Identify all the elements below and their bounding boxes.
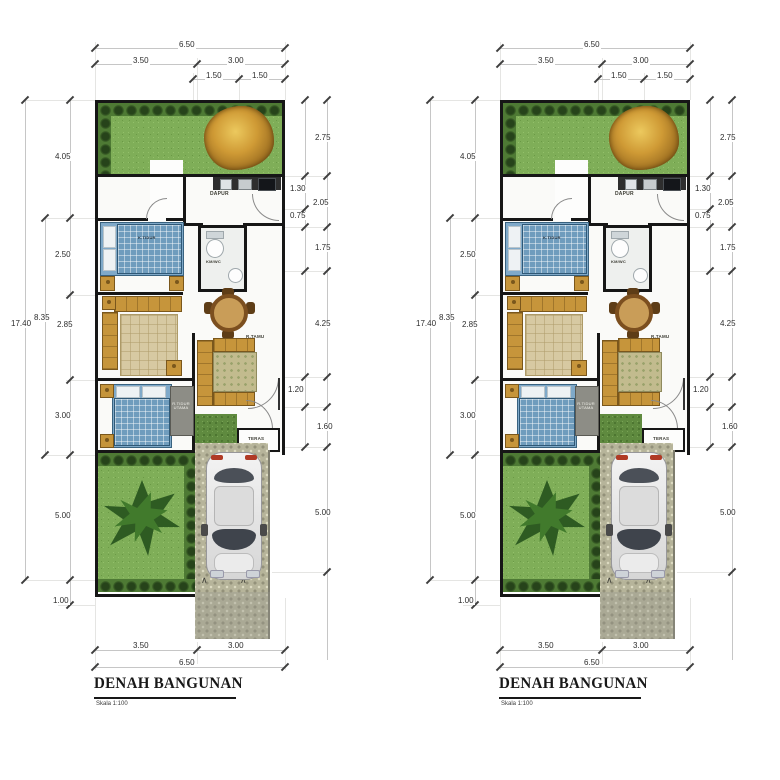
dim-left-4: 3.00 [54, 412, 72, 420]
dim-top-total: 6.50 [583, 41, 601, 49]
room-label-porch: TERAS [653, 437, 669, 442]
shrub-border [503, 579, 600, 592]
nightstand [100, 384, 114, 398]
sofa [197, 340, 213, 406]
sofa [213, 338, 255, 352]
extension-line [602, 642, 603, 664]
dimension-line [732, 100, 733, 660]
sofa [507, 312, 523, 370]
sink [633, 268, 648, 283]
plan-title: DENAH BANGUNAN [94, 676, 243, 694]
nightstand [169, 276, 184, 291]
car-mirror [665, 524, 672, 536]
floor-plan-left: 6.50 3.50 3.00 1.50 1.50 17.40 8.35 4.05… [0, 0, 390, 780]
dim-right-9: 5.00 [314, 509, 332, 517]
dim-right-1: 2.75 [719, 134, 737, 142]
dim-left-1: 4.05 [459, 153, 477, 161]
extension-line [95, 42, 96, 100]
dim-right-8: 1.60 [721, 423, 739, 431]
dim-right-7: 1.20 [287, 386, 305, 394]
ornamental-shrub [609, 106, 679, 170]
kitchen-sink [220, 179, 232, 190]
wall [243, 223, 282, 226]
extension-line [500, 598, 501, 670]
dimension-line [500, 650, 690, 651]
dimension-line [95, 650, 285, 651]
wall [503, 378, 599, 381]
room-label-bedroom: K.TIDUR [543, 236, 561, 240]
dim-bottom-right: 3.00 [632, 642, 650, 650]
lot-wall-east [282, 100, 285, 455]
car-mirror [260, 524, 267, 536]
dimension-line [45, 218, 46, 455]
dim-right-2: 1.30 [289, 185, 307, 193]
extension-line [430, 580, 500, 581]
plan-scale-note: Skala 1:100 [96, 701, 128, 707]
lot-wall-south [500, 594, 603, 597]
dim-left-1: 4.05 [54, 153, 72, 161]
sofa [618, 338, 660, 352]
kitchen-sink [625, 179, 637, 190]
car-rear-window [214, 468, 254, 483]
dimension-line [500, 64, 690, 65]
nightstand [100, 276, 115, 291]
car [611, 452, 667, 580]
title-underline [499, 697, 641, 699]
dim-left-mid: 8.35 [438, 314, 456, 322]
dim-bottom-total: 6.50 [178, 659, 196, 667]
dimension-line [710, 100, 711, 447]
dim-left-6: 1.00 [457, 597, 475, 605]
dim-left-2: 2.50 [54, 251, 72, 259]
nightstand [505, 384, 519, 398]
car-roof [619, 486, 659, 526]
pillow [103, 249, 116, 271]
dim-top-left: 3.50 [132, 57, 150, 65]
shrub-border [589, 466, 600, 579]
extension-line [463, 605, 500, 606]
bed-blanket [522, 224, 587, 274]
street-apron [195, 592, 270, 639]
dim-top-s2: 1.50 [656, 72, 674, 80]
wall [648, 223, 687, 226]
car-mirror [201, 524, 208, 536]
page-canvas: 6.50 3.50 3.00 1.50 1.50 17.40 8.35 4.05… [0, 0, 780, 780]
wall [98, 218, 148, 221]
extension-line [690, 42, 691, 100]
extension-line [58, 605, 95, 606]
room-label-master: R.TIDUR UTAMA [169, 402, 193, 410]
wall [503, 218, 553, 221]
room-label-porch: TERAS [248, 437, 264, 442]
shrub-border [98, 453, 195, 466]
ornamental-shrub [204, 106, 274, 170]
pillow [547, 386, 571, 398]
extension-line [272, 572, 327, 573]
dim-right-5: 1.75 [719, 244, 737, 252]
dim-right-9: 5.00 [719, 509, 737, 517]
nightstand [574, 276, 589, 291]
sofa [114, 296, 182, 312]
dimension-line [475, 100, 476, 605]
toilet [206, 239, 224, 258]
dim-bottom-total: 6.50 [583, 659, 601, 667]
sink [228, 268, 243, 283]
dim-right-1: 2.75 [314, 134, 332, 142]
wall [166, 218, 183, 221]
wardrobe [170, 386, 194, 436]
side-table [571, 360, 587, 376]
dim-right-8: 1.60 [316, 423, 334, 431]
title-underline [94, 697, 236, 699]
car-headlight [615, 570, 629, 578]
dining-table [210, 294, 248, 332]
dimension-line [327, 100, 328, 660]
car-taillight [650, 455, 662, 460]
dim-left-3: 2.85 [461, 321, 479, 329]
kitchen-stove [258, 178, 276, 191]
extension-line [677, 572, 732, 573]
dimension-line [70, 100, 71, 605]
car-headlight [246, 570, 260, 578]
room-label-living: R.TAMU [246, 335, 264, 340]
dim-top-s2: 1.50 [251, 72, 269, 80]
car-rear-window [619, 468, 659, 483]
dim-left-5: 5.00 [459, 512, 477, 520]
dim-left-total: 17.40 [10, 320, 32, 328]
extension-line [690, 598, 691, 670]
dim-left-2: 2.50 [459, 251, 477, 259]
nightstand [100, 434, 114, 448]
dim-right-2: 1.30 [694, 185, 712, 193]
door-leaf [683, 378, 685, 410]
pillow [142, 386, 166, 398]
car-mirror [606, 524, 613, 536]
dim-top-total: 6.50 [178, 41, 196, 49]
dim-top-right: 3.00 [632, 57, 650, 65]
nightstand [505, 434, 519, 448]
toilet [611, 239, 629, 258]
bed-blanket [114, 398, 170, 446]
dim-left-mid: 8.35 [33, 314, 51, 322]
room-label-master: R.TIDUR UTAMA [574, 402, 598, 410]
extension-line [25, 580, 95, 581]
side-table [102, 296, 116, 310]
street-apron [600, 592, 675, 639]
wardrobe [575, 386, 599, 436]
extension-line [430, 100, 500, 101]
dim-left-total: 17.40 [415, 320, 437, 328]
extension-line [197, 642, 198, 664]
car-headlight [210, 570, 224, 578]
dim-left-5: 5.00 [54, 512, 72, 520]
wall [503, 292, 588, 295]
extension-line [285, 42, 286, 100]
car-headlight [651, 570, 665, 578]
shrub-border [98, 579, 195, 592]
dining-table [615, 294, 653, 332]
room-label-living: R.TAMU [651, 335, 669, 340]
car-taillight [245, 455, 257, 460]
dim-right-4: 0.75 [289, 212, 307, 220]
nightstand [505, 276, 520, 291]
plan-scale-note: Skala 1:100 [501, 701, 533, 707]
dimension-line [500, 667, 690, 668]
dim-left-3: 2.85 [56, 321, 74, 329]
wall [588, 177, 591, 226]
shrub-border [98, 116, 111, 176]
dim-top-s1: 1.50 [205, 72, 223, 80]
room-label-bedroom: K.TIDUR [138, 236, 156, 240]
pillow [103, 226, 116, 248]
shrub-border [503, 453, 600, 466]
dim-right-6: 4.25 [719, 320, 737, 328]
dim-right-5: 1.75 [314, 244, 332, 252]
dim-top-right: 3.00 [227, 57, 245, 65]
pillow [116, 386, 140, 398]
dimension-line [95, 64, 285, 65]
dim-left-6: 1.00 [52, 597, 70, 605]
toilet-tank [611, 231, 629, 239]
wall [98, 292, 183, 295]
sofa [102, 312, 118, 370]
dim-right-4: 0.75 [694, 212, 712, 220]
wall [98, 378, 194, 381]
sofa [519, 296, 587, 312]
car-taillight [211, 455, 223, 460]
dim-right-6: 4.25 [314, 320, 332, 328]
extension-line [95, 598, 96, 670]
dimension-line [95, 667, 285, 668]
lot-wall-south [95, 594, 198, 597]
sofa [602, 340, 618, 406]
dim-top-left: 3.50 [537, 57, 555, 65]
bed-blanket [519, 398, 575, 446]
dimension-line [25, 100, 26, 580]
room-label-kitchen: DAPUR [615, 192, 634, 197]
pillow [521, 386, 545, 398]
kitchen-appliance [238, 179, 252, 190]
kitchen-appliance [643, 179, 657, 190]
dimension-line [305, 100, 306, 447]
kitchen-stove [663, 178, 681, 191]
dimension-line [450, 218, 451, 455]
bed-blanket [117, 224, 182, 274]
shrub-border [184, 466, 195, 579]
dim-left-4: 3.00 [459, 412, 477, 420]
shrub-border [503, 116, 516, 176]
room-label-kitchen: DAPUR [210, 192, 229, 197]
car [206, 452, 262, 580]
dim-right-7: 1.20 [692, 386, 710, 394]
dim-right-3: 2.05 [312, 199, 330, 207]
side-table [507, 296, 521, 310]
dim-bottom-left: 3.50 [537, 642, 555, 650]
room-label-bathroom: KM/WC [611, 260, 626, 264]
wall [571, 218, 588, 221]
extension-line [285, 598, 286, 670]
room-label-bathroom: KM/WC [206, 260, 221, 264]
side-table [166, 360, 182, 376]
toilet-tank [206, 231, 224, 239]
extension-line [500, 42, 501, 100]
wall [183, 177, 186, 226]
lot-wall-east [687, 100, 690, 455]
dim-bottom-right: 3.00 [227, 642, 245, 650]
car-roof [214, 486, 254, 526]
plan-title: DENAH BANGUNAN [499, 676, 648, 694]
pillow [508, 226, 521, 248]
floor-plan-right: 6.50 3.50 3.00 1.50 1.50 17.40 8.35 4.05… [405, 0, 780, 780]
dim-right-3: 2.05 [717, 199, 735, 207]
dim-top-s1: 1.50 [610, 72, 628, 80]
dim-bottom-left: 3.50 [132, 642, 150, 650]
car-taillight [616, 455, 628, 460]
dimension-line [430, 100, 431, 580]
door-leaf [278, 378, 280, 410]
pillow [508, 249, 521, 271]
extension-line [25, 100, 95, 101]
